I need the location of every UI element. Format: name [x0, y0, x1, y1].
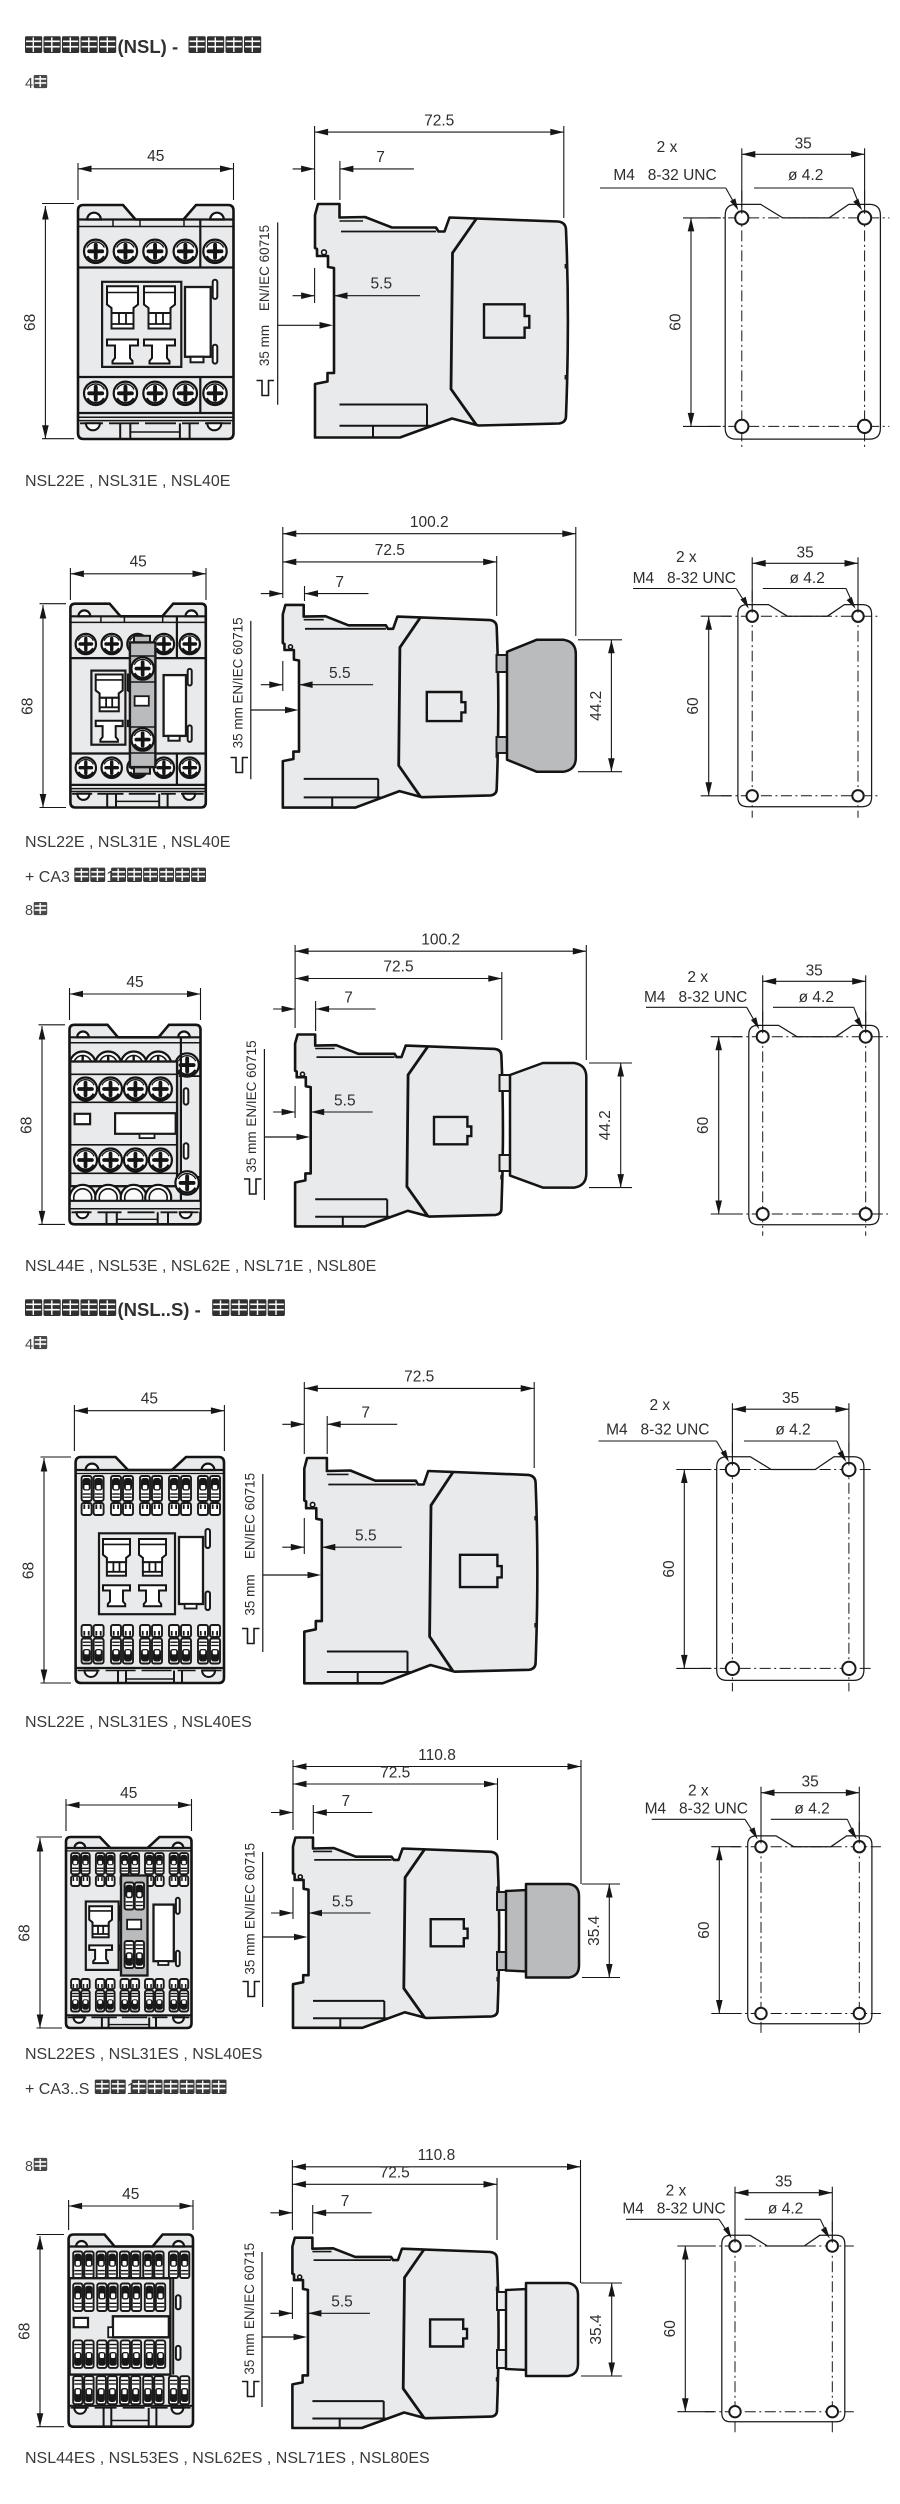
svg-text:7: 7 [341, 2193, 350, 2210]
svg-text:35.4: 35.4 [588, 2314, 605, 2345]
svg-text:35: 35 [796, 544, 813, 561]
svg-text:72.5: 72.5 [424, 113, 454, 130]
svg-text:2 x: 2 x [676, 549, 697, 566]
svg-text:(NSL) -: (NSL) - [118, 36, 179, 57]
svg-text:NSL44E , NSL53E , NSL62E , NSL: NSL44E , NSL53E , NSL62E , NSL71E , NSL8… [25, 1258, 376, 1275]
svg-text:45: 45 [120, 1785, 137, 1802]
svg-text:35: 35 [801, 1774, 818, 1791]
svg-text:35: 35 [775, 2174, 792, 2191]
svg-text:5.5: 5.5 [355, 1528, 377, 1545]
svg-text:2 x: 2 x [649, 1397, 670, 1414]
svg-text:35 mm: 35 mm [257, 325, 272, 366]
svg-text:2 x: 2 x [688, 1783, 709, 1800]
svg-text:4: 4 [25, 76, 33, 92]
svg-text:M4 8-32 UNC: M4 8-32 UNC [622, 2201, 725, 2218]
svg-text:68: 68 [19, 1117, 36, 1134]
svg-text:44.2: 44.2 [597, 1110, 614, 1140]
svg-text:ø 4.2: ø 4.2 [799, 989, 834, 1006]
svg-text:110.8: 110.8 [418, 1747, 456, 1764]
svg-text:M4 8-32 UNC: M4 8-32 UNC [613, 167, 716, 184]
svg-text:NSL22E , NSL31E , NSL40E: NSL22E , NSL31E , NSL40E [25, 834, 230, 851]
svg-text:7: 7 [344, 990, 353, 1007]
svg-text:72.5: 72.5 [375, 542, 405, 559]
svg-text:72.5: 72.5 [404, 1369, 434, 1386]
svg-text:110.8: 110.8 [418, 2147, 456, 2164]
svg-text:35: 35 [806, 962, 823, 979]
svg-text:35 mm: 35 mm [244, 1131, 259, 1172]
svg-text:M4 8-32 UNC: M4 8-32 UNC [644, 989, 747, 1006]
svg-text:35 mm: 35 mm [243, 1933, 258, 1974]
svg-text:72.5: 72.5 [383, 959, 413, 976]
svg-text:44.2: 44.2 [588, 691, 605, 721]
svg-text:45: 45 [126, 974, 143, 991]
svg-text:+ CA3..S: + CA3..S [25, 2081, 89, 2098]
svg-text:M4 8-32 UNC: M4 8-32 UNC [606, 1422, 709, 1439]
svg-text:35.4: 35.4 [586, 1915, 603, 1946]
svg-text:60: 60 [662, 2320, 679, 2338]
svg-text:ø 4.2: ø 4.2 [768, 2201, 803, 2218]
svg-text:5.5: 5.5 [334, 1093, 356, 1110]
svg-text:35: 35 [782, 1390, 799, 1407]
svg-text:ø 4.2: ø 4.2 [794, 1801, 829, 1818]
svg-text:EN/IEC 60715: EN/IEC 60715 [243, 1473, 258, 1559]
svg-text:8: 8 [25, 2159, 33, 2175]
svg-text:35 mm: 35 mm [242, 2333, 257, 2374]
svg-text:EN/IEC 60715: EN/IEC 60715 [257, 225, 272, 311]
svg-text:35 mm: 35 mm [243, 1574, 258, 1615]
svg-text:35: 35 [795, 135, 812, 152]
svg-text:+ CA3: + CA3 [25, 869, 70, 886]
svg-text:68: 68 [20, 698, 37, 715]
svg-text:45: 45 [141, 1391, 158, 1408]
svg-text:45: 45 [130, 554, 147, 571]
svg-text:60: 60 [695, 1116, 712, 1134]
svg-text:45: 45 [147, 148, 164, 165]
svg-text:5.5: 5.5 [329, 665, 351, 682]
svg-text:35 mm: 35 mm [231, 707, 246, 748]
svg-text:M4 8-32 UNC: M4 8-32 UNC [645, 1801, 748, 1818]
svg-text:NSL44ES , NSL53ES , NSL62ES ,: NSL44ES , NSL53ES , NSL62ES , NSL71ES , … [25, 2450, 430, 2467]
svg-text:68: 68 [17, 2323, 34, 2340]
svg-text:M4 8-32 UNC: M4 8-32 UNC [633, 570, 736, 587]
svg-text:EN/IEC 60715: EN/IEC 60715 [243, 1843, 258, 1929]
svg-text:EN/IEC 60715: EN/IEC 60715 [244, 1040, 259, 1126]
svg-text:45: 45 [122, 2186, 139, 2203]
svg-text:7: 7 [361, 1405, 370, 1422]
svg-text:60: 60 [661, 1560, 678, 1578]
svg-text:5.5: 5.5 [371, 276, 393, 293]
svg-text:NSL22ES , NSL31ES , NSL40ES: NSL22ES , NSL31ES , NSL40ES [25, 2046, 262, 2063]
svg-text:5.5: 5.5 [332, 1894, 354, 1911]
svg-text:100.2: 100.2 [421, 932, 460, 949]
svg-text:5.5: 5.5 [331, 2294, 353, 2311]
svg-text:7: 7 [376, 149, 385, 166]
svg-text:EN/IEC 60715: EN/IEC 60715 [242, 2243, 257, 2329]
svg-text:2 x: 2 x [687, 969, 708, 986]
svg-text:8: 8 [25, 903, 33, 919]
svg-text:60: 60 [668, 313, 685, 331]
svg-text:7: 7 [341, 1793, 350, 1810]
svg-text:NSL22E , NSL31ES , NSL40ES: NSL22E , NSL31ES , NSL40ES [25, 1714, 252, 1731]
svg-text:4: 4 [25, 1337, 33, 1353]
svg-text:2 x: 2 x [657, 139, 678, 156]
svg-text:60: 60 [685, 697, 702, 715]
svg-text:ø 4.2: ø 4.2 [775, 1422, 810, 1439]
svg-text:60: 60 [696, 1921, 713, 1939]
svg-text:(NSL..S) -: (NSL..S) - [118, 1299, 201, 1320]
svg-text:72.5: 72.5 [380, 1765, 410, 1782]
svg-text:ø 4.2: ø 4.2 [790, 570, 825, 587]
svg-text:2 x: 2 x [666, 2183, 687, 2200]
svg-text:72.5: 72.5 [380, 2165, 410, 2182]
svg-text:ø 4.2: ø 4.2 [788, 167, 823, 184]
svg-text:EN/IEC 60715: EN/IEC 60715 [231, 617, 246, 703]
svg-text:68: 68 [21, 1562, 38, 1579]
svg-text:100.2: 100.2 [410, 514, 449, 531]
svg-text:68: 68 [22, 314, 39, 331]
svg-text:7: 7 [335, 574, 344, 591]
svg-text:68: 68 [17, 1924, 34, 1941]
svg-text:NSL22E , NSL31E , NSL40E: NSL22E , NSL31E , NSL40E [25, 473, 230, 490]
